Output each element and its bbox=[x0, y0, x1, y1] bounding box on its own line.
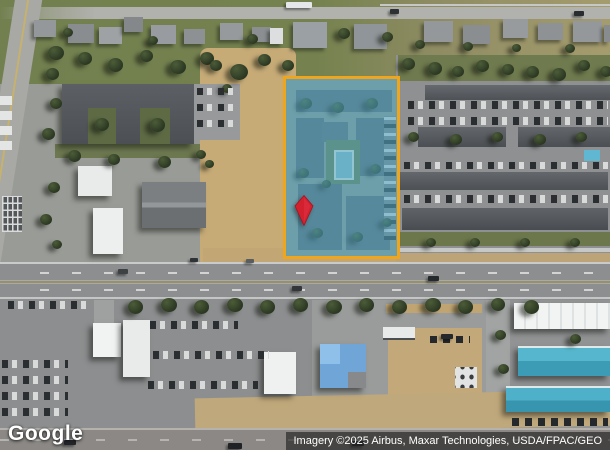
tree bbox=[492, 132, 503, 142]
vehicle bbox=[228, 443, 242, 449]
map-canvas[interactable]: Google Imagery ©2025 Airbus, Maxar Techn… bbox=[0, 0, 610, 450]
blue-roof-annex bbox=[348, 372, 366, 388]
tree bbox=[495, 330, 506, 340]
tree bbox=[498, 364, 509, 374]
house-roof bbox=[34, 20, 56, 37]
center-line-2 bbox=[0, 283, 610, 284]
tree bbox=[392, 300, 407, 314]
parked-cars-row bbox=[153, 351, 269, 359]
tree bbox=[40, 214, 52, 225]
parked-cars-row bbox=[2, 392, 68, 400]
house-roof bbox=[124, 17, 143, 32]
dirt-field bbox=[200, 48, 296, 268]
parked-cars-row bbox=[197, 104, 237, 111]
sidewalk-north bbox=[380, 4, 610, 6]
vehicle bbox=[190, 258, 198, 262]
building-skylight-roof bbox=[2, 196, 22, 232]
tree bbox=[578, 60, 590, 71]
blue-roof-light-section bbox=[320, 344, 340, 364]
apt-row-2b bbox=[518, 127, 610, 147]
vehicle bbox=[286, 2, 312, 8]
apt-pool bbox=[584, 150, 600, 161]
tree bbox=[338, 28, 350, 39]
tree bbox=[534, 134, 546, 145]
house-roof bbox=[503, 19, 528, 38]
building-store-white-a bbox=[93, 323, 121, 357]
house-roof bbox=[270, 28, 283, 44]
tree bbox=[491, 298, 505, 311]
parked-cars-row bbox=[408, 101, 608, 109]
map-pin-icon[interactable] bbox=[294, 195, 314, 226]
house-roof bbox=[184, 29, 205, 44]
path-apts-south bbox=[398, 248, 610, 252]
google-logo[interactable]: Google bbox=[8, 422, 83, 446]
tree bbox=[458, 300, 473, 314]
tree bbox=[402, 58, 415, 70]
tree bbox=[42, 128, 55, 140]
trucks-roadside bbox=[0, 94, 12, 150]
tree bbox=[247, 34, 258, 44]
carport-white bbox=[383, 327, 415, 340]
house-roof bbox=[604, 25, 610, 42]
building-white-1 bbox=[78, 166, 112, 196]
map-attribution: Imagery ©2025 Airbus, Maxar Technologies… bbox=[286, 432, 610, 450]
tree bbox=[600, 66, 610, 77]
tree bbox=[502, 64, 514, 75]
road-main-gutter-n bbox=[0, 262, 610, 264]
house-roof bbox=[538, 23, 563, 40]
tree bbox=[128, 300, 143, 314]
lane-dashes-2 bbox=[40, 289, 605, 291]
building-blue-roof bbox=[320, 344, 366, 388]
parcel-highlight-overlay[interactable] bbox=[283, 76, 400, 259]
shed-small bbox=[455, 367, 477, 388]
house-roof bbox=[293, 22, 327, 48]
tree bbox=[408, 132, 419, 142]
parked-cars-row bbox=[404, 195, 608, 203]
parked-cars-row bbox=[150, 321, 238, 329]
vehicle bbox=[441, 334, 453, 339]
tree bbox=[196, 150, 206, 159]
apt-row-3 bbox=[400, 172, 608, 190]
vehicle bbox=[118, 269, 128, 274]
tree bbox=[108, 154, 120, 165]
road-north bbox=[0, 7, 610, 19]
tree bbox=[50, 98, 62, 109]
building-store-white-b bbox=[123, 320, 150, 377]
tree bbox=[576, 132, 587, 142]
apt-row-1 bbox=[425, 85, 610, 100]
tree bbox=[526, 66, 539, 78]
tree bbox=[463, 42, 473, 51]
house-roof bbox=[424, 21, 453, 42]
tree bbox=[470, 238, 480, 247]
house-roof bbox=[99, 27, 122, 44]
tree bbox=[552, 68, 566, 81]
tree bbox=[476, 60, 489, 72]
tree bbox=[565, 44, 575, 53]
vehicle bbox=[390, 9, 399, 14]
parked-cars-row bbox=[2, 360, 68, 368]
tree bbox=[210, 60, 222, 71]
map-attribution-text: Imagery ©2025 Airbus, Maxar Technologies… bbox=[294, 435, 603, 447]
tree bbox=[205, 160, 214, 168]
tree bbox=[382, 32, 393, 42]
parked-cars-row bbox=[2, 408, 68, 416]
parked-cars-row bbox=[2, 376, 68, 384]
apt-row-4 bbox=[402, 208, 608, 230]
building-office-large bbox=[62, 84, 194, 144]
building-white-2 bbox=[93, 208, 123, 254]
building-gray-gabled bbox=[142, 182, 206, 228]
house-roof bbox=[573, 21, 602, 42]
tree bbox=[293, 298, 308, 312]
tree bbox=[570, 334, 581, 344]
tree bbox=[359, 298, 374, 312]
vehicle bbox=[292, 286, 302, 291]
tree bbox=[140, 50, 153, 62]
storage-building-teal-1 bbox=[518, 346, 610, 376]
tree bbox=[108, 58, 123, 72]
tree bbox=[520, 238, 530, 247]
tree bbox=[158, 156, 171, 168]
tree bbox=[150, 118, 165, 132]
tree bbox=[282, 60, 294, 71]
parked-cars-row bbox=[197, 88, 237, 95]
storage-building-teal-2 bbox=[506, 386, 610, 412]
tree bbox=[258, 54, 271, 66]
map-pin-glyph bbox=[294, 195, 314, 226]
house-roof bbox=[220, 23, 243, 40]
tree bbox=[46, 68, 59, 80]
parked-cars-row bbox=[148, 381, 258, 389]
parked-cars-row bbox=[404, 162, 608, 169]
parked-cars-row bbox=[8, 301, 92, 309]
tree bbox=[452, 66, 464, 77]
tree bbox=[68, 150, 81, 162]
tree bbox=[63, 28, 73, 37]
vehicle bbox=[246, 259, 254, 263]
tree bbox=[570, 238, 580, 247]
tree bbox=[512, 44, 521, 52]
tree bbox=[524, 300, 539, 314]
parked-cars-row bbox=[408, 117, 608, 125]
vehicle bbox=[574, 11, 584, 16]
tree bbox=[428, 62, 442, 75]
tree bbox=[415, 40, 425, 49]
tree bbox=[95, 118, 109, 131]
tree bbox=[78, 52, 92, 65]
tree bbox=[48, 182, 60, 193]
vehicle bbox=[428, 276, 439, 281]
tree bbox=[148, 36, 158, 45]
parked-cars-row bbox=[197, 120, 237, 127]
tree bbox=[426, 238, 436, 247]
center-line-1 bbox=[0, 280, 610, 281]
tree bbox=[194, 300, 209, 314]
tree bbox=[52, 240, 62, 249]
road-main bbox=[0, 262, 610, 300]
tree bbox=[260, 300, 275, 314]
parked-cars-row bbox=[512, 418, 608, 426]
tree bbox=[450, 134, 462, 145]
